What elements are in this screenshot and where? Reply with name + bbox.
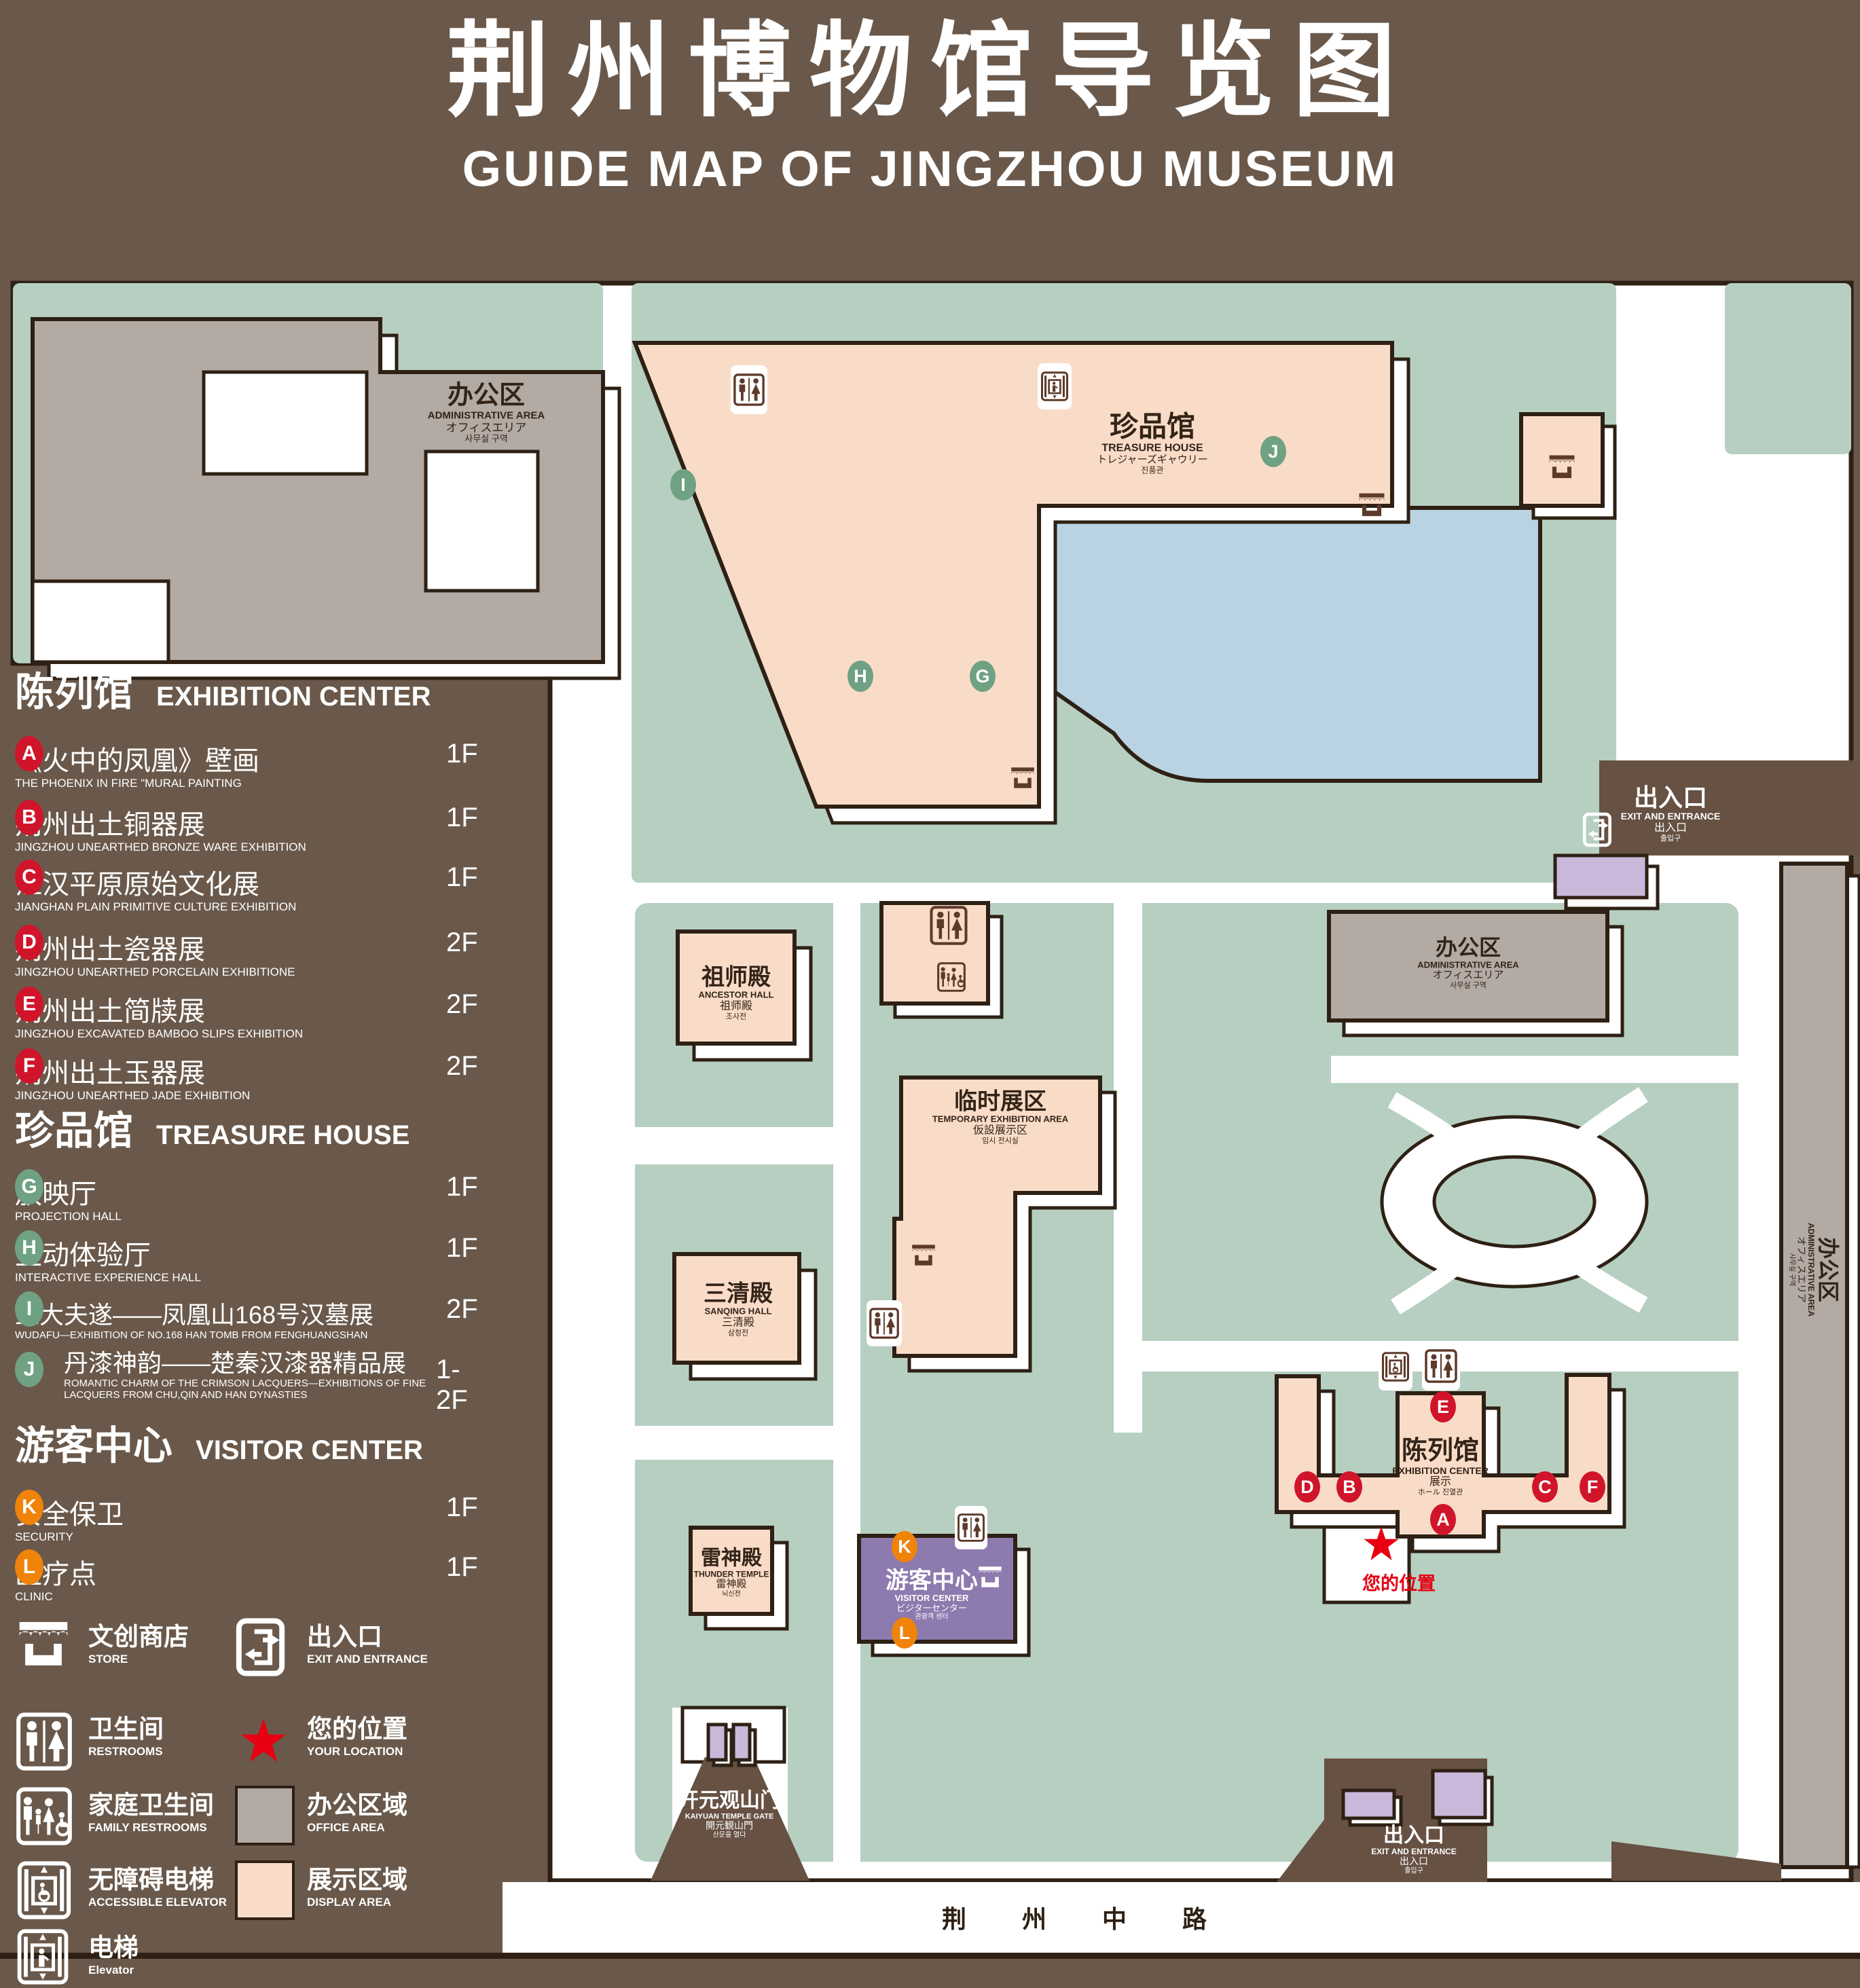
accessible-elevator-icon — [1383, 1353, 1408, 1380]
legend-symbol-store: 文创商店STORE — [88, 1624, 189, 1666]
map-marker-J: J — [1260, 436, 1286, 467]
legend-item-H: H 互动体验厅INTERACTIVE EXPERIENCE HALL 1F — [15, 1229, 201, 1270]
label-exhibition-center: 陈列馆 EXHIBITION CENTER 展示 ホール 진열관 — [1392, 1437, 1489, 1496]
building-exit-top-annex — [1555, 855, 1658, 908]
building-treasure-annex — [1521, 414, 1615, 518]
building-admin-topleft — [33, 319, 619, 678]
gate-pillar-right — [733, 1725, 755, 1765]
building-admin-strip — [1781, 864, 1859, 1867]
map-marker-C: C — [1532, 1471, 1558, 1503]
map-marker-K: K — [892, 1531, 917, 1562]
label-admin-topleft: 办公区 ADMINISTRATIVE AREA オフィスエリア 사무실 구역 — [428, 382, 545, 445]
office-area-swatch — [235, 1786, 295, 1845]
label-admin-strip: 办公区 ADMINISTRATIVE AREA オフィスエリア 사무실 구역 — [1788, 1223, 1840, 1317]
label-admin-right: 办公区 ADMINISTRATIVE AREA オフィスエリア 사무실 구역 — [1417, 936, 1519, 989]
display-area-swatch — [235, 1860, 295, 1920]
label-sanqing-hall: 三清殿 SANQING HALL 三清殿 삼청전 — [704, 1281, 773, 1338]
legend-symbol-your-location: 您的位置YOUR LOCATION — [307, 1716, 407, 1759]
map-marker-E: E — [1430, 1391, 1456, 1422]
label-visitor-center: 游客中心 VISITOR CENTER ビジターセンター 관광객 센터 — [886, 1568, 978, 1621]
legend-item-E: E 荆州出土简牍展JINGZHOU EXCAVATED BAMBOO SLIPS… — [15, 985, 303, 1026]
legend-symbol-family-restrooms: 家庭卫生间FAMILY RESTROOMS — [88, 1792, 214, 1835]
legend-item-J: J 丹漆神韵——楚秦汉漆器精品展 ROMANTIC CHARM OF THE C… — [15, 1350, 444, 1391]
accessible-elevator-icon — [15, 1858, 73, 1923]
legend-section-exhibition-center: 陈列馆EXHIBITION CENTER — [15, 660, 431, 717]
map-marker-F: F — [1580, 1471, 1605, 1503]
your-location-label: 您的位置 — [1362, 1569, 1436, 1596]
legend-item-B: B 荆州出土铜器展JINGZHOU UNEARTHED BRONZE WARE … — [15, 798, 306, 839]
elevator-icon — [15, 1927, 71, 1987]
legend-item-D: D 荆州出土瓷器展JINGZHOU UNEARTHED PORCELAIN EX… — [15, 923, 295, 964]
map-marker-D: D — [1294, 1471, 1320, 1503]
guide-map-poster: 荆州博物馆导览图 GUIDE MAP OF JINGZHOU MUSEUM — [0, 0, 1860, 1988]
building-exit-bottom-annex-1 — [1343, 1790, 1401, 1825]
legend-symbol-display-area: 展示区域DISPLAY AREA — [307, 1867, 407, 1909]
map-marker-G: G — [970, 661, 996, 692]
family-restroom-icon — [15, 1784, 73, 1848]
legend-section-treasure-house: 珍品馆TREASURE HOUSE — [15, 1099, 409, 1156]
legend-symbol-exit: 出入口EXIT AND ENTRANCE — [307, 1624, 428, 1666]
legend-item-K: K 安全保卫SECURITY 1F — [15, 1488, 124, 1529]
legend-item-I: I 五大夫遂——凤凰山168号汉墓展WUDAFU—EXHIBITION OF N… — [15, 1290, 373, 1331]
legend-symbol-restrooms: 卫生间RESTROOMS — [88, 1716, 164, 1759]
legend-item-G: G 放映厅PROJECTION HALL 1F — [15, 1168, 122, 1209]
legend-symbol-accessible-elevator: 无障碍电梯ACCESSIBLE ELEVATOR — [88, 1867, 227, 1909]
label-ancestor-hall: 祖师殿 ANCESTOR HALL 祖师殿 조사전 — [699, 965, 774, 1021]
restroom-icon — [15, 1710, 73, 1773]
legend-symbol-elevator: 电梯Elevator — [88, 1935, 139, 1977]
legend-symbol-office-area: 办公区域OFFICE AREA — [307, 1792, 407, 1835]
label-temporary-area: 临时展区 TEMPORARY EXHIBITION AREA 仮設展示区 임시 … — [932, 1089, 1068, 1145]
legend-item-L: L 医疗点CLINIC 1F — [15, 1548, 96, 1589]
label-thunder-temple: 雷神殿 THUNDER TEMPLE 雷神殿 뇌신전 — [694, 1547, 769, 1598]
legend-item-F: F 荆州出土玉器展JINGZHOU UNEARTHED JADE EXHIBIT… — [15, 1047, 250, 1088]
legend-item-A: A 《火中的凤凰》壁画THE PHOENIX IN FIRE "MURAL PA… — [15, 735, 259, 775]
garden-island — [1434, 1157, 1594, 1247]
building-exit-bottom-annex-2 — [1433, 1771, 1492, 1824]
store-icon — [15, 1619, 72, 1676]
map-marker-L: L — [892, 1617, 917, 1649]
road-label: 荆 州 中 路 — [942, 1900, 1231, 1935]
label-exit-top: 出入口 EXIT AND ENTRANCE 出入口 출입구 — [1621, 784, 1721, 843]
exit-icon — [233, 1617, 293, 1677]
elevator-icon — [1042, 373, 1068, 400]
map-marker-I: I — [670, 469, 696, 500]
map-marker-H: H — [847, 661, 873, 692]
map-marker-B: B — [1336, 1471, 1362, 1503]
legend-section-visitor-center: 游客中心VISITOR CENTER — [15, 1414, 423, 1471]
gate-pillar-left — [708, 1725, 731, 1765]
label-treasure-house: 珍品馆 TREASURE HOUSE トレジャーズギャウリー 진품관 — [1097, 410, 1208, 475]
legend-item-C: C 江汉平原原始文化展JIANGHAN PLAIN PRIMITIVE CULT… — [15, 858, 296, 899]
label-gate: 开元观山门 KAIYUAN TEMPLE GATE 開元観山門 산문을 열다 — [678, 1790, 780, 1839]
label-exit-bottom: 出入口 EXIT AND ENTRANCE 出入口 출입구 — [1371, 1824, 1457, 1875]
ground-corner-ne — [1725, 283, 1851, 454]
location-star-icon — [239, 1716, 288, 1765]
map-marker-A: A — [1430, 1504, 1456, 1535]
